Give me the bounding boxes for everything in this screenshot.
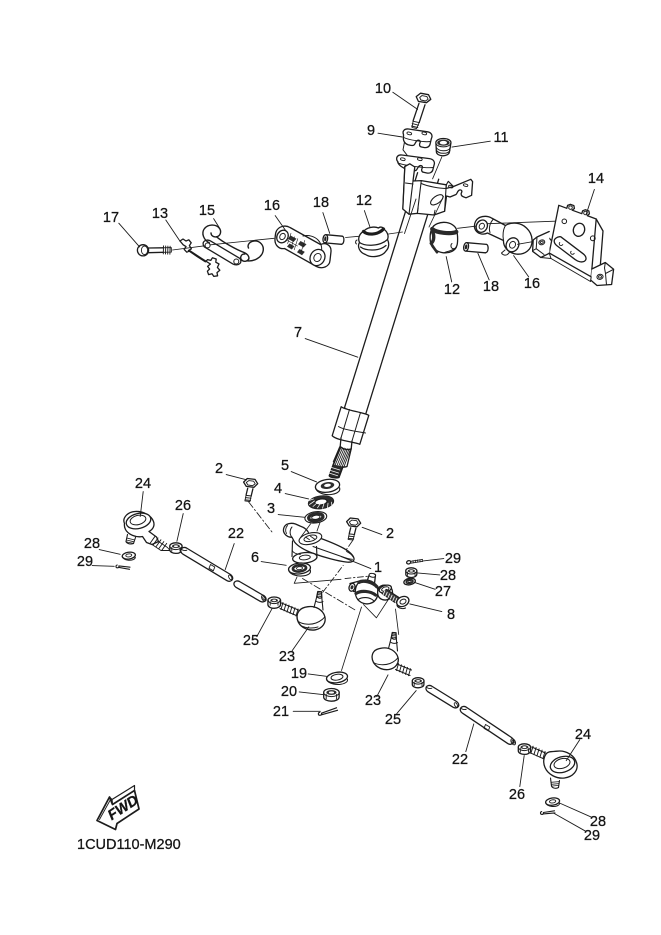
svg-text:6: 6 [251, 550, 259, 566]
svg-text:26: 26 [509, 787, 525, 803]
svg-text:23: 23 [365, 693, 381, 709]
svg-text:12: 12 [356, 193, 372, 209]
svg-text:22: 22 [228, 526, 244, 542]
svg-text:25: 25 [243, 633, 259, 649]
svg-text:19: 19 [291, 666, 307, 682]
svg-text:29: 29 [77, 554, 93, 570]
svg-text:4: 4 [274, 481, 282, 497]
svg-text:23: 23 [279, 649, 295, 665]
svg-text:1CUD110-M290: 1CUD110-M290 [77, 837, 181, 853]
svg-text:21: 21 [273, 704, 289, 720]
svg-text:3: 3 [267, 501, 275, 517]
svg-text:22: 22 [452, 752, 468, 768]
svg-text:20: 20 [281, 684, 297, 700]
svg-text:27: 27 [435, 584, 451, 600]
svg-text:28: 28 [84, 536, 100, 552]
svg-text:10: 10 [375, 81, 391, 97]
svg-text:11: 11 [493, 130, 508, 146]
svg-text:2: 2 [215, 461, 223, 477]
svg-text:2: 2 [386, 526, 394, 542]
svg-text:5: 5 [281, 458, 289, 474]
svg-text:18: 18 [313, 195, 329, 211]
svg-text:26: 26 [175, 498, 191, 514]
svg-text:17: 17 [103, 210, 119, 226]
svg-text:8: 8 [447, 607, 455, 623]
svg-text:7: 7 [294, 325, 302, 341]
svg-text:28: 28 [440, 568, 456, 584]
svg-text:24: 24 [575, 727, 591, 743]
svg-text:14: 14 [588, 171, 604, 187]
svg-text:16: 16 [264, 198, 280, 214]
svg-text:12: 12 [444, 282, 460, 298]
svg-text:16: 16 [524, 276, 540, 292]
svg-text:25: 25 [385, 712, 401, 728]
svg-text:1: 1 [374, 560, 382, 576]
svg-text:18: 18 [483, 279, 499, 295]
svg-text:24: 24 [135, 476, 151, 492]
svg-text:29: 29 [445, 551, 461, 567]
svg-text:13: 13 [152, 206, 168, 222]
svg-text:29: 29 [584, 828, 600, 844]
svg-text:9: 9 [367, 123, 375, 139]
svg-text:15: 15 [199, 203, 215, 219]
